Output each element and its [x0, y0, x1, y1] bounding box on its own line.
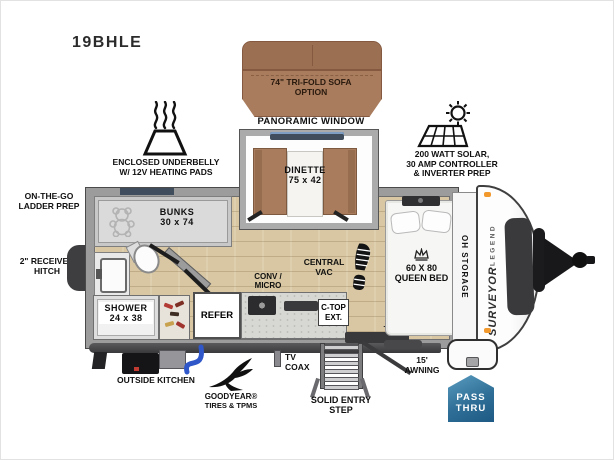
clothes-icon — [176, 321, 186, 329]
step-rung — [324, 377, 359, 382]
sofa-backrest — [243, 42, 381, 71]
panoramic-window-label: PANORAMIC WINDOW — [250, 117, 372, 128]
brand-logo: SURVEYOR LEGEND — [481, 204, 505, 336]
pass-thru-latch — [466, 357, 479, 367]
hitch-ball — [586, 256, 595, 264]
goodyear-wingfoot-icon — [207, 357, 255, 393]
clothes-icon — [175, 300, 185, 307]
central-vac-label: CENTRAL VAC — [300, 258, 348, 277]
step-rung — [324, 385, 359, 390]
awning-label: 15' AWNING — [398, 356, 446, 375]
cooktop — [248, 296, 276, 315]
outside-kitchen-unit — [122, 353, 159, 374]
teddy-bear-icon — [107, 205, 137, 237]
marker-light — [484, 192, 491, 197]
hose-icon — [182, 342, 210, 375]
bedroom-tv — [402, 196, 440, 206]
floorplan-diagram: 19BHLE 74" TRI-FOLD SOFA OPTION PANORAMI… — [0, 0, 614, 460]
heating-pads-icon — [142, 101, 188, 157]
solar-panel-icon — [417, 100, 475, 150]
refrigerator: REFER — [193, 292, 241, 339]
overhead-storage: OH STORAGE — [452, 192, 477, 342]
countertop-ext-label: C-TOP EXT. — [318, 299, 349, 326]
outside-kitchen-label: OUTSIDE KITCHEN — [111, 376, 201, 386]
awning-roller — [384, 340, 422, 348]
pillow — [390, 210, 421, 234]
overhead-storage-label: OH STORAGE — [460, 235, 469, 299]
ladder-prep-label: ON-THE-GO LADDER PREP — [13, 192, 85, 211]
step-rung — [324, 353, 359, 358]
bathroom-sink — [100, 258, 127, 293]
bunks-label: BUNKS 30 x 74 — [139, 207, 215, 227]
crown-icon — [413, 248, 430, 261]
goodyear-label: GOODYEAR® TIRES & TPMS — [197, 393, 265, 410]
stabilizer-jack — [92, 352, 107, 369]
kitchen-sink — [284, 301, 318, 311]
tv-coax-jack — [274, 350, 281, 367]
clothes-icon — [164, 303, 174, 310]
pass-thru-badge: PASS THRU — [448, 375, 494, 422]
queen-bed-label: 60 X 80 QUEEN BED — [386, 263, 457, 283]
shower-label: SHOWER 24 x 38 — [99, 302, 153, 324]
outside-kitchen-knob — [134, 367, 139, 371]
dinette-label: DINETTE 75 x 42 — [277, 165, 333, 185]
front-window — [504, 218, 534, 316]
dinette-window — [270, 132, 344, 140]
model-number: 19BHLE — [72, 34, 142, 52]
entry-step-label: SOLID ENTRY STEP — [306, 395, 376, 415]
clothes-icon — [165, 321, 175, 327]
step-rung — [324, 361, 359, 366]
entry-step — [319, 343, 364, 393]
clothes-icon — [170, 312, 179, 317]
pillow — [421, 209, 452, 233]
faucet — [96, 269, 102, 279]
sofa-option-label: 74" TRI-FOLD SOFA OPTION — [242, 78, 380, 97]
solar-prep-label: 200 WATT SOLAR, 30 AMP CONTROLLER & INVE… — [395, 150, 509, 179]
step-rung — [324, 345, 359, 350]
underbelly-label: ENCLOSED UNDERBELLY W/ 12V HEATING PADS — [104, 158, 228, 177]
sofa-seam — [251, 75, 373, 76]
bunk-window — [120, 188, 174, 195]
marker-light — [484, 328, 491, 333]
wardrobe — [159, 295, 190, 340]
step-rung — [324, 369, 359, 374]
conv-micro-label: CONV / MICRO — [244, 273, 292, 291]
